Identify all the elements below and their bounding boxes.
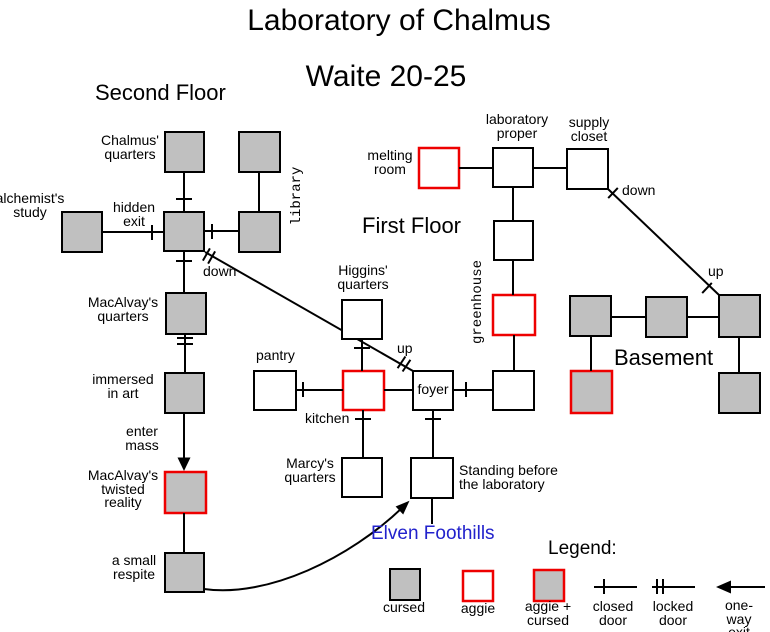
room-label-standing-before: Standing before the laboratory bbox=[459, 464, 558, 491]
room-label-foyer: foyer bbox=[417, 383, 448, 397]
exit-label-down-basement: down bbox=[622, 184, 655, 198]
exit-label-hidden-exit: hidden exit bbox=[113, 201, 155, 228]
room-label-library: library bbox=[289, 167, 305, 226]
room-greenhouse bbox=[493, 295, 535, 335]
room-label-kitchen: kitchen bbox=[305, 412, 349, 426]
room-chalmus-quarters bbox=[165, 132, 204, 172]
room-unnamed-north bbox=[494, 221, 533, 260]
heading-second-floor: Second Floor bbox=[95, 81, 226, 104]
legend-label-cursed: cursed bbox=[383, 601, 425, 615]
legend-label-one-way-exit: one-way exit bbox=[724, 599, 755, 632]
room-label-macalvays-quarters: MacAlvay's quarters bbox=[88, 296, 158, 323]
room-unnamed-south bbox=[493, 371, 534, 410]
room-melting-room bbox=[419, 148, 459, 188]
room-label-immersed-in-art: immersed in art bbox=[92, 373, 153, 400]
room-immersed-in-art bbox=[165, 373, 204, 413]
heading-legend: Legend: bbox=[548, 539, 617, 559]
room-label-supply-closet: supply closet bbox=[569, 116, 609, 143]
stairs-supplycloset-to-basement bbox=[608, 189, 719, 295]
room-standing-before-laboratory bbox=[411, 458, 453, 498]
room-supply-closet bbox=[567, 149, 608, 189]
heading-first-floor: First Floor bbox=[362, 214, 461, 237]
one-way-path-respite-to-laboratory bbox=[204, 507, 403, 590]
legend-aggie-cursed-swatch bbox=[534, 570, 564, 601]
legend-label-aggie-cursed: aggie + cursed bbox=[525, 600, 571, 627]
map-subtitle: Waite 20-25 bbox=[306, 61, 467, 93]
exit-label-up-stairs: up bbox=[397, 342, 413, 356]
exit-label-down-stairs: down bbox=[203, 265, 236, 279]
legend-label-locked-door: locked door bbox=[653, 600, 693, 627]
room-label-pantry: pantry bbox=[256, 349, 295, 363]
exit-label-enter-mass: enter mass bbox=[125, 425, 158, 452]
room-laboratory-proper bbox=[493, 148, 533, 187]
room-label-chalmus-quarters: Chalmus' quarters bbox=[101, 134, 159, 161]
legend-cursed-swatch bbox=[390, 569, 420, 600]
room-basement-east bbox=[719, 295, 760, 337]
room-basement-middle bbox=[646, 297, 687, 337]
room-label-a-small-respite: a small respite bbox=[112, 554, 156, 581]
legend-label-closed-door: closed door bbox=[593, 600, 633, 627]
heading-basement: Basement bbox=[614, 346, 713, 369]
room-label-twisted-reality: MacAlvay's twisted reality bbox=[88, 469, 158, 510]
room-macalvays-quarters bbox=[166, 293, 206, 334]
room-a-small-respite bbox=[165, 553, 204, 592]
enter-mass-arrowhead bbox=[178, 458, 191, 472]
legend-aggie-swatch bbox=[463, 571, 493, 601]
exit-label-up-basement: up bbox=[708, 265, 724, 279]
legend-one-way-arrowhead bbox=[716, 581, 731, 594]
room-higgins-quarters bbox=[342, 300, 382, 339]
room-label-marcys-quarters: Marcy's quarters bbox=[284, 457, 335, 484]
legend-glyphs bbox=[390, 569, 765, 601]
room-macalvays-twisted-reality bbox=[165, 472, 206, 513]
laboratory-of-chalmus-map: Laboratory of Chalmus Waite 20-25 Second… bbox=[0, 0, 770, 632]
room-library-north bbox=[239, 132, 280, 172]
area-exit-label: Elven Foothills bbox=[371, 524, 495, 544]
stair-connections bbox=[205, 189, 719, 371]
room-label-greenhouse: greenhouse bbox=[470, 260, 486, 344]
legend-label-aggie: aggie bbox=[461, 602, 495, 616]
map-title: Laboratory of Chalmus bbox=[247, 5, 551, 37]
room-label-melting-room: melting room bbox=[367, 149, 412, 176]
room-pantry bbox=[254, 371, 296, 410]
room-library-south bbox=[239, 212, 280, 252]
room-alchemists-study bbox=[62, 212, 102, 252]
room-kitchen bbox=[343, 371, 384, 410]
room-label-higgins-quarters: Higgins' quarters bbox=[337, 264, 388, 291]
room-basement-southwest bbox=[571, 371, 612, 413]
room-marcys-quarters bbox=[342, 458, 382, 497]
room-hidden-exit-landing bbox=[164, 212, 204, 251]
room-basement-southeast bbox=[719, 373, 760, 413]
room-label-laboratory-proper: laboratory proper bbox=[486, 113, 548, 140]
room-label-alchemists-study: alchemist's study bbox=[0, 192, 64, 219]
room-basement-west bbox=[570, 296, 611, 336]
